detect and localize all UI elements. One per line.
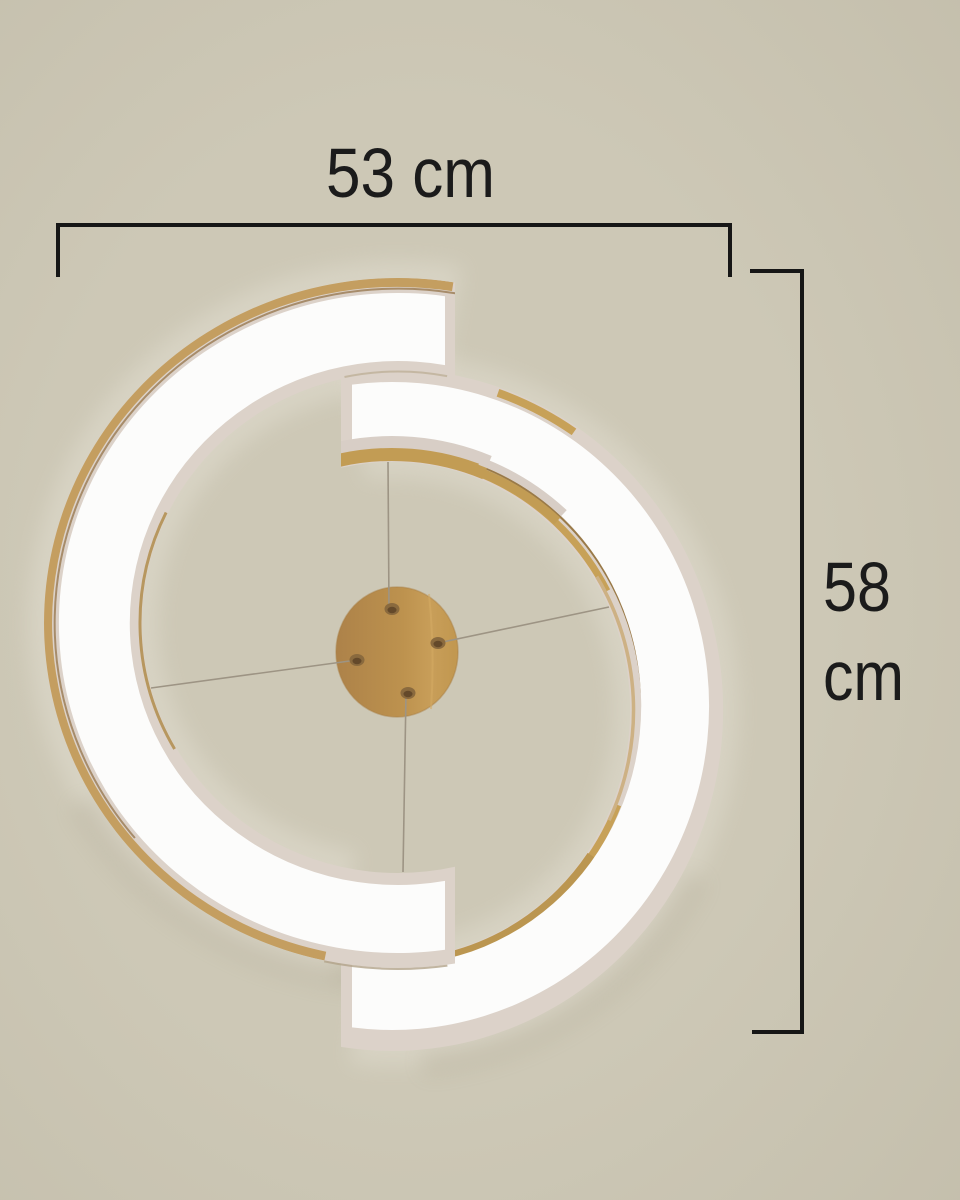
svg-text:53 cm: 53 cm (326, 134, 495, 212)
svg-text:cm: cm (823, 637, 904, 715)
svg-text:58: 58 (823, 548, 891, 626)
